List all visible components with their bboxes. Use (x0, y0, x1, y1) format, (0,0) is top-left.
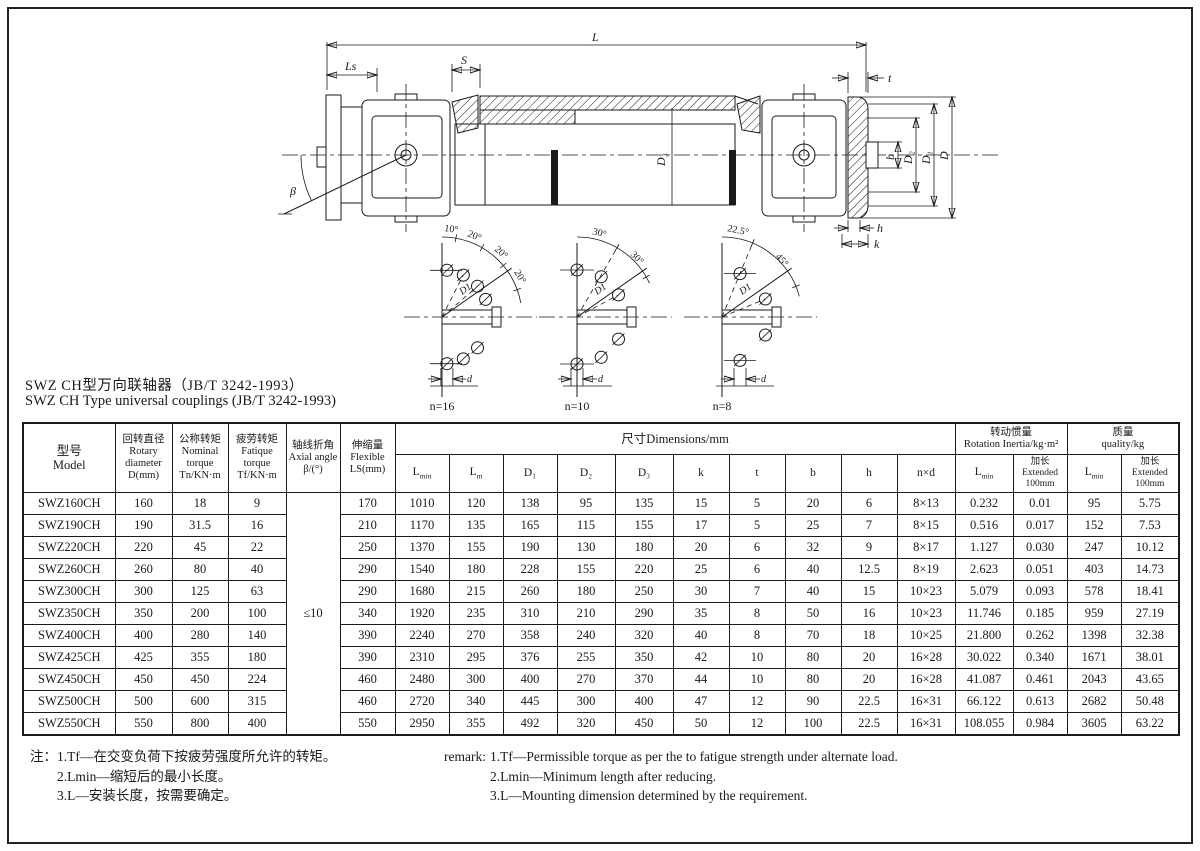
cell-ls: 460 (340, 669, 395, 691)
detail-d-label: d (761, 374, 767, 385)
cell-h: 7 (841, 515, 897, 537)
cell-lm: 215 (449, 581, 503, 603)
cell-tf: 40 (228, 559, 286, 581)
cell-nxd: 16×31 (897, 691, 955, 713)
cell-inertia_ext: 0.984 (1013, 713, 1067, 736)
cell-mass_lmin: 1398 (1067, 625, 1121, 647)
cell-inertia_lmin: 41.087 (955, 669, 1013, 691)
subheader-b: b (785, 455, 841, 493)
note-line: 1.Tf—Permissible torque as per the to fa… (490, 747, 898, 767)
cell-lmin: 2240 (395, 625, 449, 647)
table-row: SWZ350CH35020010034019202353102102903585… (23, 603, 1179, 625)
cell-d2: 320 (557, 713, 615, 736)
subheader-k: k (673, 455, 729, 493)
detail-dia-label: D1 (592, 281, 609, 298)
cell-inertia_ext: 0.01 (1013, 493, 1067, 515)
cell-d2: 130 (557, 537, 615, 559)
dim-label-d2-view: D₂ (901, 151, 915, 165)
cell-d3: 180 (615, 537, 673, 559)
subheader-mass-extended: 加长 Extended 100mm (1121, 455, 1179, 493)
bolt-circle-detail-n16: 10° 20° 20° 20° D1 d n=16 (404, 223, 537, 413)
cell-t: 8 (729, 625, 785, 647)
cell-h: 22.5 (841, 713, 897, 736)
cell-mass_ext: 10.12 (1121, 537, 1179, 559)
cell-tn: 450 (172, 669, 228, 691)
cell-d2: 255 (557, 647, 615, 669)
cell-nxd: 8×15 (897, 515, 955, 537)
cell-nxd: 8×19 (897, 559, 955, 581)
detail-n-label: n=8 (713, 399, 732, 413)
cell-h: 12.5 (841, 559, 897, 581)
cell-d2: 155 (557, 559, 615, 581)
cell-tn: 280 (172, 625, 228, 647)
note-line: 2.Lmin—Minimum length after reducing. (490, 767, 898, 787)
cell-k: 20 (673, 537, 729, 559)
cell-lmin: 2950 (395, 713, 449, 736)
cell-d3: 155 (615, 515, 673, 537)
note-line: 2.Lmin—缩短后的最小长度。 (57, 767, 336, 787)
notes-chinese: 注： 1.Tf—在交变负荷下按疲劳强度所允许的转矩。 2.Lmin—缩短后的最小… (30, 747, 336, 806)
cell-model: SWZ450CH (23, 669, 115, 691)
cell-mass_ext: 50.48 (1121, 691, 1179, 713)
subheader-lmin: Lmin (395, 455, 449, 493)
cell-k: 30 (673, 581, 729, 603)
cell-k: 25 (673, 559, 729, 581)
cell-lmin: 2310 (395, 647, 449, 669)
cell-d3: 370 (615, 669, 673, 691)
cell-tn: 800 (172, 713, 228, 736)
cell-d1: 400 (503, 669, 557, 691)
cell-inertia_ext: 0.017 (1013, 515, 1067, 537)
cell-ls: 340 (340, 603, 395, 625)
cell-model: SWZ400CH (23, 625, 115, 647)
cell-mass_ext: 43.65 (1121, 669, 1179, 691)
cell-ls: 460 (340, 691, 395, 713)
cell-mass_ext: 7.53 (1121, 515, 1179, 537)
cell-ls: 290 (340, 581, 395, 603)
cell-lm: 120 (449, 493, 503, 515)
cell-mass_ext: 32.38 (1121, 625, 1179, 647)
header-model: 型号 Model (23, 423, 115, 493)
cell-d3: 450 (615, 713, 673, 736)
cell-d3: 400 (615, 691, 673, 713)
cell-h: 22.5 (841, 691, 897, 713)
table-row: SWZ400CH40028014039022402703582403204087… (23, 625, 1179, 647)
cell-d1: 228 (503, 559, 557, 581)
cell-b: 100 (785, 713, 841, 736)
header-dimensions: 尺寸Dimensions/mm (395, 423, 955, 455)
subheader-d1: D₁ (503, 455, 557, 493)
header-mass: 质量 quality/kg (1067, 423, 1179, 455)
cell-d3: 135 (615, 493, 673, 515)
cell-lmin: 2720 (395, 691, 449, 713)
dim-label-S: S (461, 53, 467, 67)
cell-d1: 138 (503, 493, 557, 515)
table-header: 型号 Model 回转直径 Rotary diameter D(mm) 公称转矩… (23, 423, 1179, 493)
cell-lm: 235 (449, 603, 503, 625)
cell-t: 7 (729, 581, 785, 603)
cell-b: 20 (785, 493, 841, 515)
cell-tn: 18 (172, 493, 228, 515)
cell-b: 40 (785, 581, 841, 603)
cell-t: 10 (729, 669, 785, 691)
cell-model: SWZ260CH (23, 559, 115, 581)
cell-d: 220 (115, 537, 172, 559)
detail-d-label: d (598, 374, 604, 385)
cell-mass_ext: 38.01 (1121, 647, 1179, 669)
cell-tn: 80 (172, 559, 228, 581)
cell-tn: 200 (172, 603, 228, 625)
cell-inertia_lmin: 66.122 (955, 691, 1013, 713)
table-row: SWZ220CH22045222501370155190130180206329… (23, 537, 1179, 559)
cell-tf: 315 (228, 691, 286, 713)
cell-b: 32 (785, 537, 841, 559)
dim-label-h: h (877, 221, 883, 235)
angle-label: 10° (444, 223, 459, 236)
detail-dia-label: D1 (737, 281, 754, 298)
cell-tf: 100 (228, 603, 286, 625)
cell-mass_ext: 63.22 (1121, 713, 1179, 736)
cell-t: 10 (729, 647, 785, 669)
subheader-d3: D₃ (615, 455, 673, 493)
subheader-mass-lmin: Lmin (1067, 455, 1121, 493)
dim-label-L: L (591, 30, 599, 44)
cell-nxd: 16×28 (897, 669, 955, 691)
cell-tn: 355 (172, 647, 228, 669)
cell-inertia_lmin: 21.800 (955, 625, 1013, 647)
cell-inertia_ext: 0.185 (1013, 603, 1067, 625)
cell-lmin: 1370 (395, 537, 449, 559)
cell-d1: 445 (503, 691, 557, 713)
cell-d3: 250 (615, 581, 673, 603)
cell-nxd: 8×17 (897, 537, 955, 559)
cell-lmin: 2480 (395, 669, 449, 691)
cell-inertia_ext: 0.262 (1013, 625, 1067, 647)
cell-mass_ext: 5.75 (1121, 493, 1179, 515)
note-line: 3.L—安装长度，按需要确定。 (57, 786, 336, 806)
cell-inertia_ext: 0.613 (1013, 691, 1067, 713)
bolt-circle-detail-n10: 30° 30° D1 d n=10 (539, 226, 672, 413)
cell-d3: 350 (615, 647, 673, 669)
angle-label: 30° (628, 249, 646, 267)
angle-label: 45° (773, 252, 791, 270)
cell-b: 50 (785, 603, 841, 625)
cell-d1: 165 (503, 515, 557, 537)
cell-d1: 260 (503, 581, 557, 603)
cell-t: 8 (729, 603, 785, 625)
subheader-nxd: n×d (897, 455, 955, 493)
header-rotation-inertia: 转动惯量 Rotation Inertia/kg·m² (955, 423, 1067, 455)
cell-h: 20 (841, 647, 897, 669)
cell-d: 300 (115, 581, 172, 603)
cell-d: 450 (115, 669, 172, 691)
cell-model: SWZ220CH (23, 537, 115, 559)
table-row: SWZ260CH26080402901540180228155220256401… (23, 559, 1179, 581)
cell-ls: 250 (340, 537, 395, 559)
cell-t: 12 (729, 691, 785, 713)
cell-nxd: 16×31 (897, 713, 955, 736)
cell-d: 425 (115, 647, 172, 669)
cell-model: SWZ300CH (23, 581, 115, 603)
cell-k: 15 (673, 493, 729, 515)
cell-k: 35 (673, 603, 729, 625)
cell-d: 260 (115, 559, 172, 581)
cell-nxd: 10×23 (897, 581, 955, 603)
dim-label-D: D (937, 151, 951, 161)
cell-tn: 45 (172, 537, 228, 559)
catalog-page: D₃ β L Ls (0, 0, 1200, 851)
cell-h: 6 (841, 493, 897, 515)
cell-inertia_ext: 0.030 (1013, 537, 1067, 559)
cell-t: 5 (729, 493, 785, 515)
cell-inertia_lmin: 2.623 (955, 559, 1013, 581)
cell-lm: 135 (449, 515, 503, 537)
cell-ls: 290 (340, 559, 395, 581)
notes-english: remark: 1.Tf—Permissible torque as per t… (444, 747, 898, 806)
cell-b: 70 (785, 625, 841, 647)
cell-d: 550 (115, 713, 172, 736)
cell-inertia_lmin: 11.746 (955, 603, 1013, 625)
detail-d-label: d (467, 374, 473, 385)
cell-ls: 170 (340, 493, 395, 515)
page-title-zh: SWZ CH型万向联轴器（JB/T 3242-1993） (25, 374, 304, 395)
main-assembly-view: D₃ β L Ls (278, 30, 1000, 251)
bolt-circle-detail-n8: 22.5° 45° D1 d n=8 (684, 223, 817, 413)
header-flexible: 伸缩量 Flexible LS(mm) (340, 423, 395, 493)
cell-b: 80 (785, 647, 841, 669)
dim-label-t: t (888, 71, 892, 85)
dimension-spec-table: 型号 Model 回转直径 Rotary diameter D(mm) 公称转矩… (22, 422, 1180, 736)
cell-t: 12 (729, 713, 785, 736)
cell-d: 500 (115, 691, 172, 713)
angle-label: 22.5° (726, 223, 749, 238)
cell-k: 17 (673, 515, 729, 537)
cell-tf: 63 (228, 581, 286, 603)
notes-zh-label: 注： (30, 747, 57, 806)
cell-d: 400 (115, 625, 172, 647)
angle-label: 20° (492, 244, 510, 262)
detail-n-label: n=16 (430, 399, 455, 413)
cell-lm: 270 (449, 625, 503, 647)
cell-tf: 9 (228, 493, 286, 515)
cell-inertia_lmin: 1.127 (955, 537, 1013, 559)
cell-lm: 155 (449, 537, 503, 559)
cell-d1: 358 (503, 625, 557, 647)
table-row: SWZ160CH160189≤1017010101201389513515520… (23, 493, 1179, 515)
cell-k: 42 (673, 647, 729, 669)
cell-inertia_ext: 0.340 (1013, 647, 1067, 669)
cell-inertia_lmin: 5.079 (955, 581, 1013, 603)
subheader-d2: D₂ (557, 455, 615, 493)
cell-lmin: 1170 (395, 515, 449, 537)
cell-d: 190 (115, 515, 172, 537)
cell-inertia_lmin: 0.232 (955, 493, 1013, 515)
cell-mass_ext: 18.41 (1121, 581, 1179, 603)
cell-ls: 390 (340, 647, 395, 669)
cell-mass_lmin: 152 (1067, 515, 1121, 537)
coupling-engineering-drawing: D₃ β L Ls (0, 0, 1200, 420)
cell-t: 6 (729, 559, 785, 581)
subheader-h: h (841, 455, 897, 493)
cell-lm: 180 (449, 559, 503, 581)
cell-lm: 355 (449, 713, 503, 736)
cell-ls: 390 (340, 625, 395, 647)
table-row: SWZ425CH42535518039023102953762553504210… (23, 647, 1179, 669)
cell-t: 5 (729, 515, 785, 537)
cell-d3: 220 (615, 559, 673, 581)
cell-t: 6 (729, 537, 785, 559)
table-row: SWZ300CH30012563290168021526018025030740… (23, 581, 1179, 603)
cell-tf: 22 (228, 537, 286, 559)
cell-lmin: 1680 (395, 581, 449, 603)
angle-label: 20° (511, 268, 528, 286)
cell-inertia_ext: 0.461 (1013, 669, 1067, 691)
cell-d1: 492 (503, 713, 557, 736)
cell-d2: 210 (557, 603, 615, 625)
cell-b: 40 (785, 559, 841, 581)
cell-ls: 550 (340, 713, 395, 736)
cell-inertia_lmin: 108.055 (955, 713, 1013, 736)
dim-label-d1-view: D₁ (919, 151, 933, 165)
dim-label-beta: β (289, 184, 296, 198)
cell-d3: 290 (615, 603, 673, 625)
cell-tf: 16 (228, 515, 286, 537)
cell-lm: 295 (449, 647, 503, 669)
cell-mass_lmin: 247 (1067, 537, 1121, 559)
subheader-lm: Lm (449, 455, 503, 493)
cell-inertia_lmin: 0.516 (955, 515, 1013, 537)
cell-inertia_ext: 0.093 (1013, 581, 1067, 603)
cell-model: SWZ160CH (23, 493, 115, 515)
cell-d2: 270 (557, 669, 615, 691)
cell-ls: 210 (340, 515, 395, 537)
cell-d3: 320 (615, 625, 673, 647)
cell-k: 40 (673, 625, 729, 647)
cell-h: 16 (841, 603, 897, 625)
cell-k: 47 (673, 691, 729, 713)
cell-nxd: 10×25 (897, 625, 955, 647)
detail-n-label: n=10 (565, 399, 590, 413)
cell-d2: 240 (557, 625, 615, 647)
cell-mass_lmin: 2043 (1067, 669, 1121, 691)
cell-model: SWZ350CH (23, 603, 115, 625)
cell-d1: 310 (503, 603, 557, 625)
cell-d2: 300 (557, 691, 615, 713)
cell-inertia_ext: 0.051 (1013, 559, 1067, 581)
cell-k: 50 (673, 713, 729, 736)
cell-mass_lmin: 1671 (1067, 647, 1121, 669)
cell-nxd: 8×13 (897, 493, 955, 515)
cell-b: 90 (785, 691, 841, 713)
cell-b: 25 (785, 515, 841, 537)
cell-model: SWZ425CH (23, 647, 115, 669)
header-axial-angle: 轴线折角 Axial angle β/(°) (286, 423, 340, 493)
cell-mass_lmin: 3605 (1067, 713, 1121, 736)
cell-h: 15 (841, 581, 897, 603)
table-row: SWZ190CH19031.51621011701351651151551752… (23, 515, 1179, 537)
header-fatigue-torque: 疲劳转矩 Fatique torque Tf/KN·m (228, 423, 286, 493)
cell-d1: 376 (503, 647, 557, 669)
cell-mass_lmin: 2682 (1067, 691, 1121, 713)
subheader-t: t (729, 455, 785, 493)
cell-beta-merged: ≤10 (286, 493, 340, 736)
cell-nxd: 16×28 (897, 647, 955, 669)
cell-tf: 224 (228, 669, 286, 691)
cell-h: 20 (841, 669, 897, 691)
cell-d: 350 (115, 603, 172, 625)
cell-lmin: 1010 (395, 493, 449, 515)
cell-d: 160 (115, 493, 172, 515)
cell-mass_lmin: 959 (1067, 603, 1121, 625)
dim-label-b: b (883, 154, 897, 160)
cell-model: SWZ550CH (23, 713, 115, 736)
cell-nxd: 10×23 (897, 603, 955, 625)
cell-tn: 125 (172, 581, 228, 603)
cell-k: 44 (673, 669, 729, 691)
cell-tf: 140 (228, 625, 286, 647)
table-body: SWZ160CH160189≤1017010101201389513515520… (23, 493, 1179, 736)
cell-lmin: 1920 (395, 603, 449, 625)
cell-mass_ext: 27.19 (1121, 603, 1179, 625)
table-row: SWZ550CH55080040055029503554923204505012… (23, 713, 1179, 736)
cell-model: SWZ190CH (23, 515, 115, 537)
cell-d1: 190 (503, 537, 557, 559)
cell-lm: 300 (449, 669, 503, 691)
cell-b: 80 (785, 669, 841, 691)
table-row: SWZ450CH45045022446024803004002703704410… (23, 669, 1179, 691)
dim-label-k: k (874, 237, 880, 251)
cell-tn: 600 (172, 691, 228, 713)
note-line: 1.Tf—在交变负荷下按疲劳强度所允许的转矩。 (57, 747, 336, 767)
notes-en-label: remark: (444, 747, 486, 806)
cell-d2: 115 (557, 515, 615, 537)
cell-h: 18 (841, 625, 897, 647)
cell-tf: 180 (228, 647, 286, 669)
cell-tn: 31.5 (172, 515, 228, 537)
cell-inertia_lmin: 30.022 (955, 647, 1013, 669)
cell-h: 9 (841, 537, 897, 559)
cell-d2: 95 (557, 493, 615, 515)
subheader-inertia-extended: 加长 Extended 100mm (1013, 455, 1067, 493)
dim-label-Ls: Ls (344, 59, 357, 73)
note-line: 3.L—Mounting dimension determined by the… (490, 786, 898, 806)
subheader-inertia-lmin: Lmin (955, 455, 1013, 493)
cell-model: SWZ500CH (23, 691, 115, 713)
cell-mass_lmin: 95 (1067, 493, 1121, 515)
table-row: SWZ500CH50060031546027203404453004004712… (23, 691, 1179, 713)
cell-d2: 180 (557, 581, 615, 603)
cell-mass_lmin: 403 (1067, 559, 1121, 581)
page-title-en: SWZ CH Type universal couplings (JB/T 32… (25, 393, 336, 410)
header-nominal-torque: 公称转矩 Nominal torque Tn/KN·m (172, 423, 228, 493)
dim-label-d3: D₃ (654, 153, 668, 167)
cell-mass_lmin: 578 (1067, 581, 1121, 603)
cell-lmin: 1540 (395, 559, 449, 581)
cell-mass_ext: 14.73 (1121, 559, 1179, 581)
cell-tf: 400 (228, 713, 286, 736)
cell-lm: 340 (449, 691, 503, 713)
header-rotary-diameter: 回转直径 Rotary diameter D(mm) (115, 423, 172, 493)
